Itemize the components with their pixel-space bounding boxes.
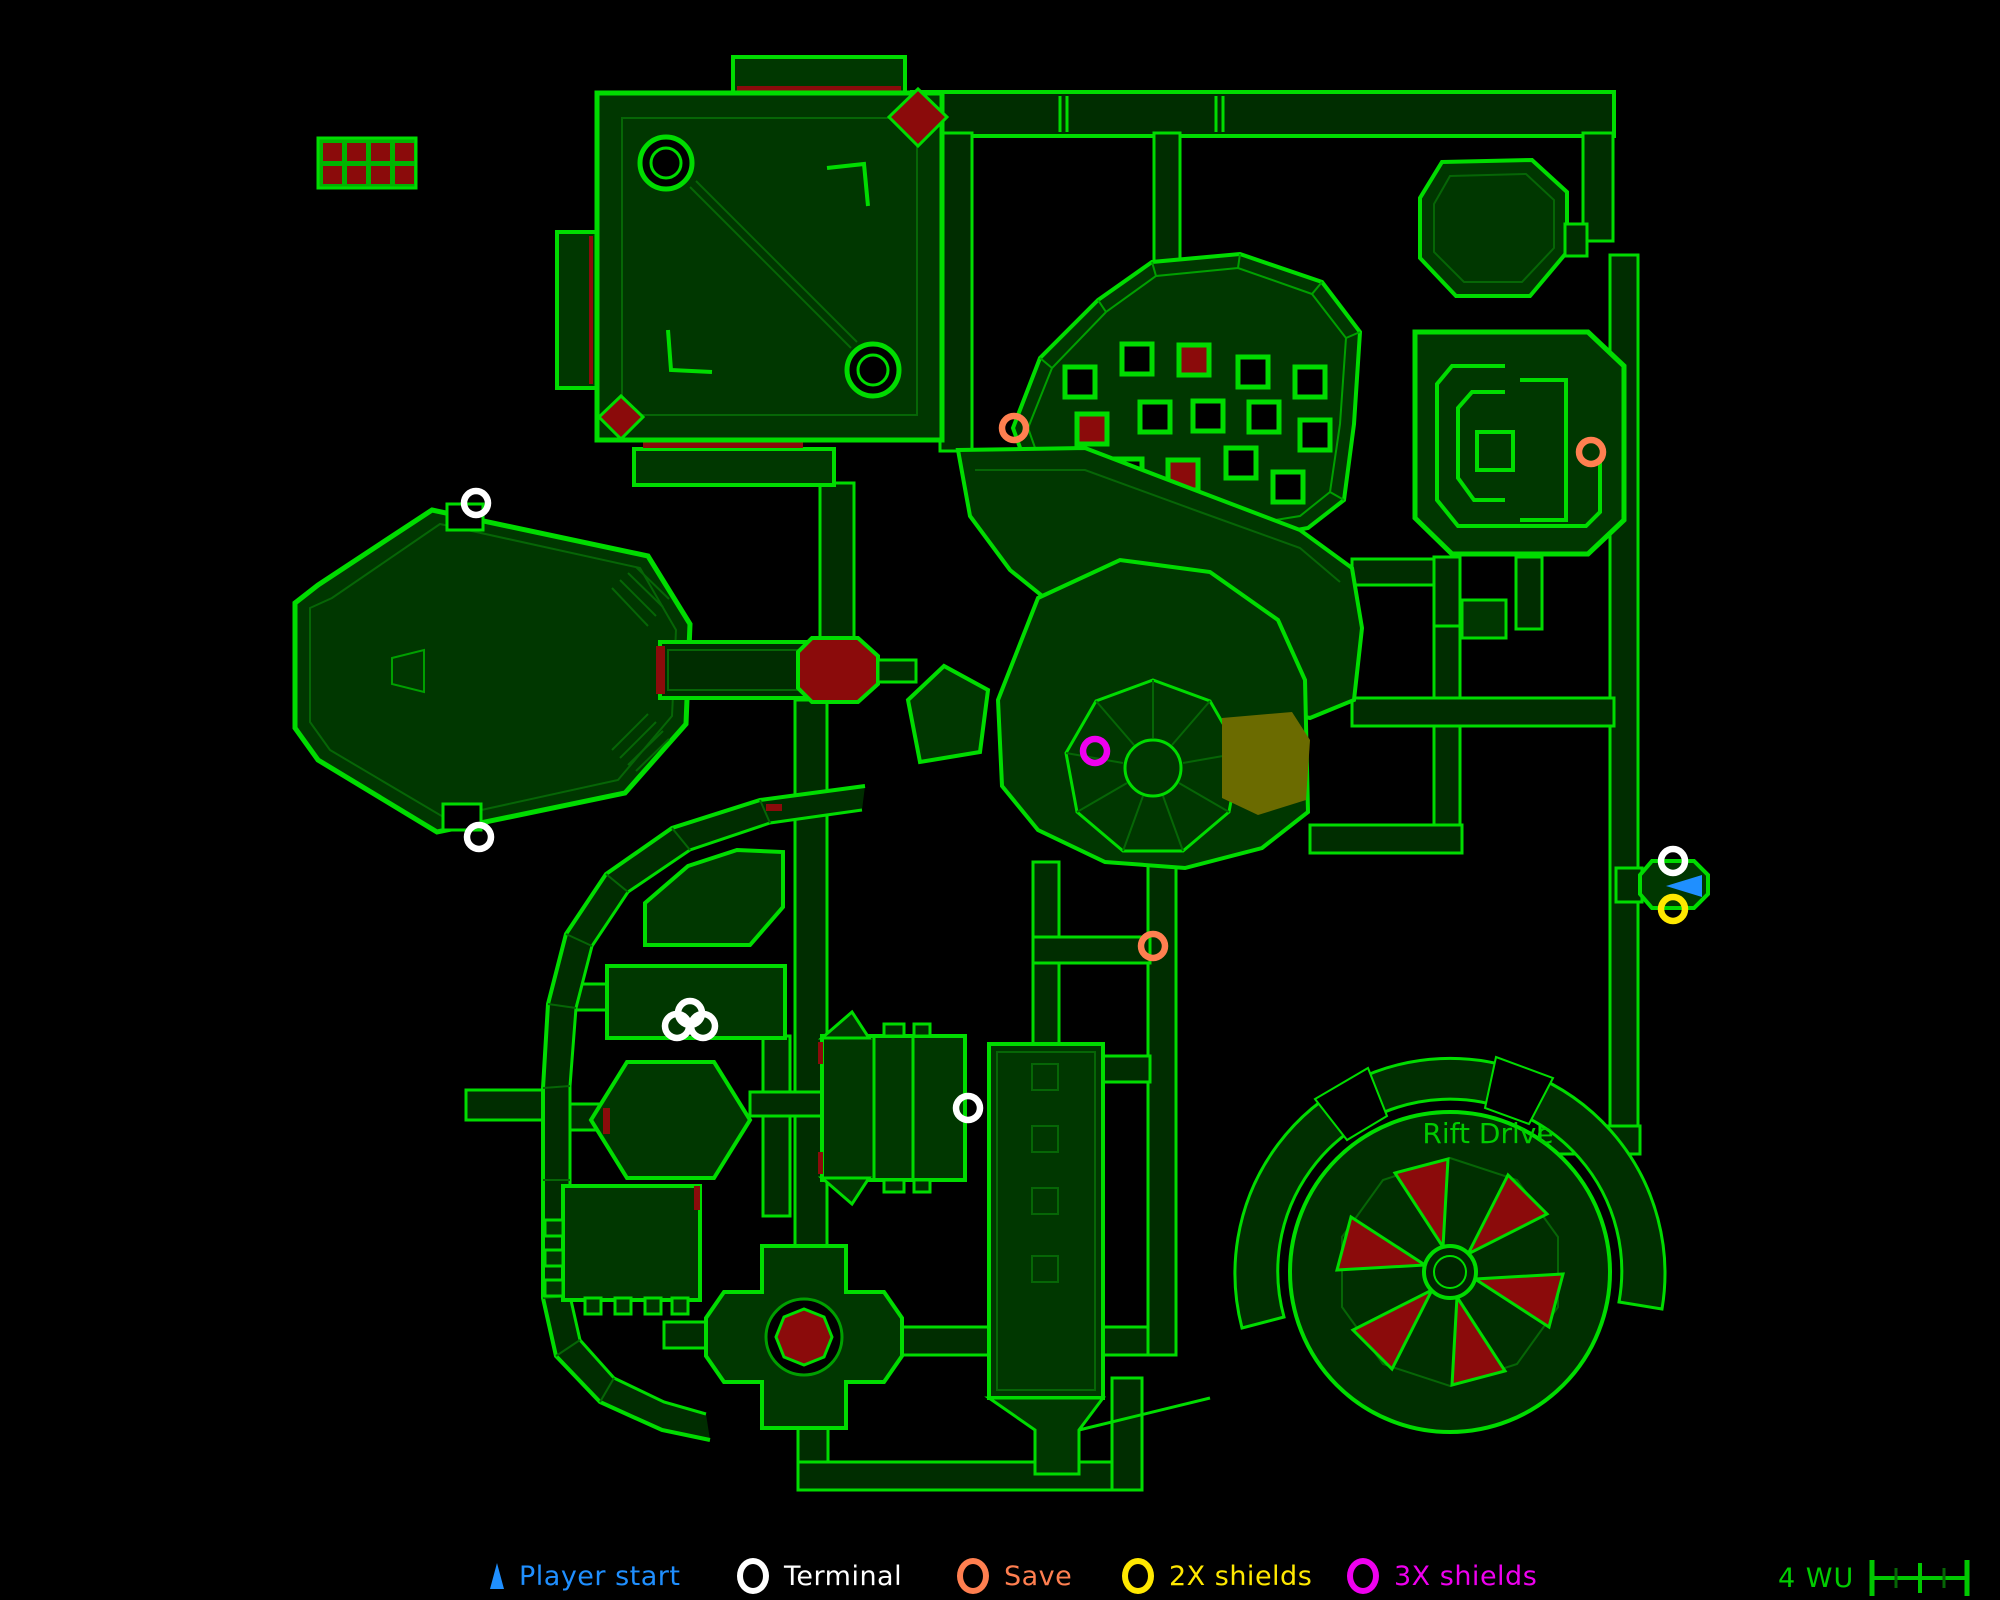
map-shape <box>371 166 390 184</box>
olive-floor <box>1222 712 1310 815</box>
map-shape <box>672 1298 688 1314</box>
map-shape <box>643 442 803 448</box>
map-shape <box>545 1250 563 1266</box>
map-shape <box>820 483 854 640</box>
map-shape <box>737 86 901 91</box>
legend-item-shields-2x: 2X shields <box>1122 1552 1312 1600</box>
map-shape <box>1565 224 1587 256</box>
map-shape <box>395 143 414 161</box>
map-shape <box>1249 402 1279 432</box>
shields-2x-icon <box>1122 1558 1154 1594</box>
map-shape <box>1112 1378 1142 1490</box>
top-corridor <box>912 92 1614 136</box>
map-shape <box>645 1298 661 1314</box>
map-shape <box>1122 344 1152 374</box>
save-icon <box>957 1558 989 1594</box>
terminal-icon <box>737 1558 769 1594</box>
legend-item-player-start: Player start <box>490 1552 681 1600</box>
map-shape <box>1295 367 1325 397</box>
red-junction <box>798 638 878 702</box>
map-shape <box>1154 133 1180 265</box>
map-shape <box>1238 357 1268 387</box>
pillar-ring <box>847 344 899 396</box>
legend-label: Save <box>1004 1561 1072 1592</box>
legend-item-shields-3x: 3X shields <box>1347 1552 1537 1600</box>
map-shape <box>656 646 665 694</box>
map-shape <box>323 166 342 184</box>
map-shape <box>1462 600 1506 638</box>
map-shape <box>615 1298 631 1314</box>
map-shape <box>634 449 834 485</box>
map-shape <box>1103 1056 1150 1082</box>
map-shape <box>766 804 782 811</box>
legend-label: Player start <box>519 1561 681 1592</box>
map-shape <box>1065 367 1095 397</box>
map-shape <box>1300 420 1330 450</box>
map-canvas: Rift Drive <box>0 0 2000 1600</box>
map-shape <box>466 1090 552 1120</box>
map-shape <box>589 236 593 384</box>
legend-label: 3X shields <box>1394 1561 1537 1592</box>
red-octagon <box>776 1309 832 1365</box>
map-shape <box>1179 345 1209 375</box>
map-shape <box>818 1152 823 1174</box>
ladder-room <box>822 1036 965 1180</box>
northeast-octagon-room <box>1420 160 1567 296</box>
map-shape <box>1077 414 1107 444</box>
map-shape <box>1434 557 1460 629</box>
map-shape <box>1310 825 1462 853</box>
map-shape <box>323 143 342 161</box>
legend-label: Terminal <box>784 1561 902 1592</box>
map-shape <box>884 1024 904 1036</box>
bottom-loop-corridor <box>798 1462 1142 1490</box>
map-shape <box>1434 726 1460 825</box>
map-shape <box>585 1298 601 1314</box>
map-shape <box>1352 698 1614 726</box>
legend-item-terminal: Terminal <box>737 1552 902 1600</box>
map-scale: 4 WU <box>1778 1556 1976 1600</box>
map-shape <box>1477 432 1513 470</box>
pentagon-room <box>908 666 988 762</box>
map-shape <box>914 1024 930 1036</box>
map-shape <box>940 133 972 451</box>
legend: Player startTerminalSave2X shields3X shi… <box>0 1552 2000 1600</box>
map-viewer: Rift Drive Player startTerminalSave2X sh… <box>0 0 2000 1600</box>
column-room <box>989 1044 1103 1398</box>
map-shape <box>347 166 366 184</box>
legend-label: 2X shields <box>1169 1561 1312 1592</box>
legend-item-save: Save <box>957 1552 1072 1600</box>
map-shape <box>1226 448 1256 478</box>
map-shape <box>822 1012 869 1038</box>
pillar-ring <box>640 137 692 189</box>
map-shape <box>694 1186 700 1210</box>
map-shape <box>1033 937 1150 963</box>
map-shape <box>347 143 366 161</box>
shields-3x-icon <box>1347 1558 1379 1594</box>
hexagon-room <box>591 1062 750 1178</box>
scale-ruler <box>1864 1556 1976 1600</box>
map-shape <box>1352 559 1444 585</box>
map-shape <box>1424 1246 1476 1298</box>
octagon-room <box>295 510 690 832</box>
map-shape <box>878 660 916 682</box>
map-shape <box>1140 402 1170 432</box>
map-shape <box>545 1280 563 1296</box>
map-shape <box>884 1180 904 1192</box>
player-start-icon <box>490 1563 504 1589</box>
map-shape <box>914 1180 930 1192</box>
map-shape <box>822 1178 869 1204</box>
map-shape <box>1516 557 1542 629</box>
map-shape <box>750 1092 822 1116</box>
map-shape <box>1273 472 1303 502</box>
map-shape <box>395 166 414 184</box>
scale-label: 4 WU <box>1778 1563 1854 1594</box>
map-shape <box>545 1220 563 1236</box>
map-shape <box>371 143 390 161</box>
map-shape <box>763 1036 790 1216</box>
map-shape <box>603 1108 610 1134</box>
comb-room <box>563 1186 700 1300</box>
map-shape <box>1193 401 1223 431</box>
map-shape <box>818 1042 823 1064</box>
map-label: Rift Drive <box>1422 1117 1553 1150</box>
map-shape <box>664 1322 708 1348</box>
